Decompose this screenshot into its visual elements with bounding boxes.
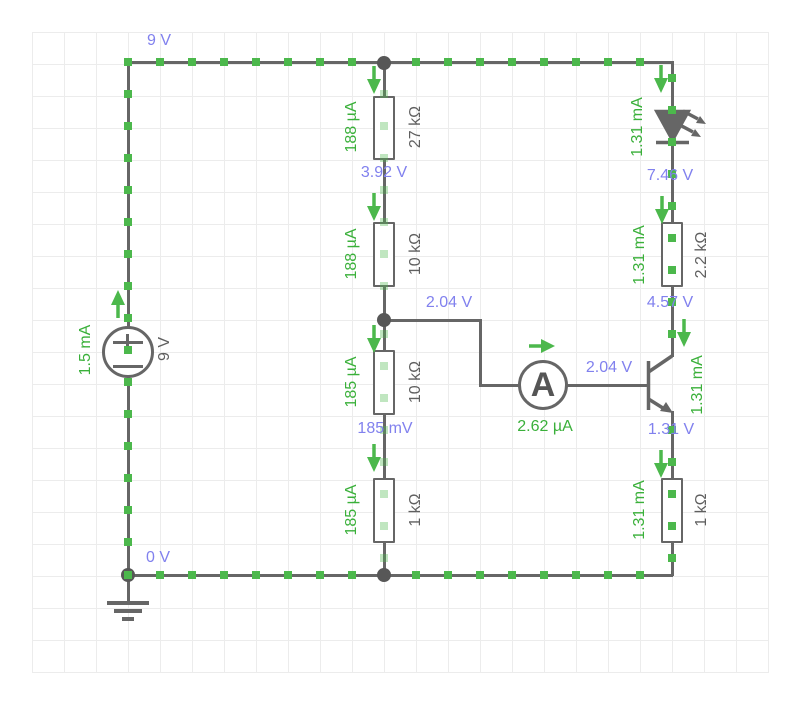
- led-light-arrows-icon: [677, 107, 711, 141]
- current-dots-top-rail: [124, 58, 664, 66]
- voltage-label-emitter: 1.31 V: [648, 421, 694, 439]
- ground-icon: [122, 617, 134, 621]
- current-label-r1k-left: 185 µA: [343, 484, 361, 535]
- current-arrow-down-icon: [366, 192, 382, 222]
- voltage-label-bottom-rail: 0 V: [146, 549, 170, 567]
- ammeter[interactable]: A: [518, 360, 568, 410]
- current-arrow-down-icon: [366, 65, 382, 95]
- current-label-r10k-lower: 185 µA: [343, 356, 361, 407]
- wire-tap-vertical[interactable]: [479, 319, 482, 386]
- ground-icon: [114, 609, 142, 613]
- voltage-label-base: 2.04 V: [586, 359, 632, 377]
- value-label-r2k2: 2.2 kΩ: [693, 232, 711, 279]
- current-arrow-down-icon: [366, 443, 382, 473]
- value-label-r10k-upper: 10 kΩ: [407, 233, 425, 275]
- transistor-npn[interactable]: [640, 350, 684, 418]
- current-label-r10k-upper: 188 µA: [343, 228, 361, 279]
- ground-icon[interactable]: [107, 601, 149, 605]
- current-arrow-up-icon: [110, 289, 126, 319]
- current-dots-right-3: [668, 426, 676, 566]
- value-label-r1k-left: 1 kΩ: [407, 493, 425, 526]
- voltage-label-top-rail: 9 V: [147, 32, 171, 50]
- source-minus-icon: [113, 365, 143, 368]
- voltage-label-divider-tap: 2.04 V: [426, 294, 472, 312]
- voltage-label-divider-upper: 3.92 V: [361, 164, 407, 182]
- junction-dot: [377, 56, 391, 70]
- ammeter-reading: 2.62 µA: [517, 418, 572, 436]
- current-dots-left-lower: [124, 378, 132, 550]
- value-label-r10k-lower: 10 kΩ: [407, 361, 425, 403]
- current-dots-right-1: [668, 74, 676, 150]
- wire-ammeter-in[interactable]: [479, 384, 520, 387]
- current-label-r2k2: 1.31 mA: [631, 225, 649, 285]
- value-label-r27k: 27 kΩ: [407, 106, 425, 148]
- value-label-source: 9 V: [156, 337, 174, 361]
- voltage-label-led-cathode: 7.46 V: [647, 167, 693, 185]
- ammeter-symbol: A: [531, 368, 556, 402]
- current-arrow-down-icon: [653, 449, 669, 479]
- current-arrow-down-icon: [676, 318, 692, 348]
- current-dots-mid-upper: [380, 90, 388, 290]
- voltage-label-185mv: 185 mV: [357, 420, 412, 438]
- current-label-led: 1.31 mA: [629, 97, 647, 157]
- current-label-source: 1.5 mA: [77, 325, 95, 376]
- junction-dot: [377, 313, 391, 327]
- circuit-canvas[interactable]: A 9 V 0 V 3.92 V 2.04 V 185 mV 2.04 V 7.…: [0, 0, 800, 704]
- current-arrow-down-icon: [654, 195, 670, 225]
- wire-tap-horizontal[interactable]: [383, 319, 482, 322]
- wire-ammeter-out[interactable]: [567, 384, 650, 387]
- junction-dot: [377, 568, 391, 582]
- value-label-r1k-right: 1 kΩ: [693, 493, 711, 526]
- current-label-r27k: 188 µA: [343, 101, 361, 152]
- current-dots-bottom-rail: [156, 571, 662, 579]
- current-arrow-down-icon: [366, 324, 382, 354]
- current-arrow-right-icon: [528, 338, 556, 354]
- current-dot-source: [124, 346, 132, 354]
- current-label-r1k-right: 1.31 mA: [631, 480, 649, 540]
- current-label-transistor: 1.31 mA: [689, 355, 707, 415]
- current-dot: [124, 571, 132, 579]
- current-arrow-down-icon: [653, 64, 669, 94]
- voltage-label-collector: 4.57 V: [647, 294, 693, 312]
